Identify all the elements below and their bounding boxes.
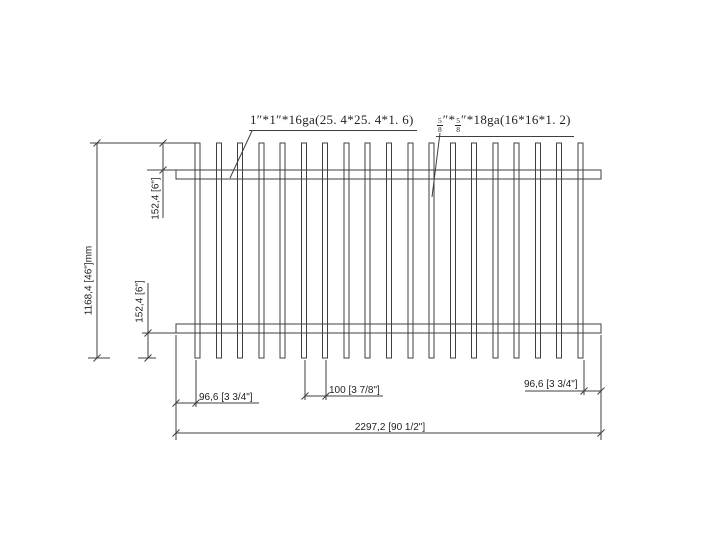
- dim-overall-height: 1168,4 [46"]mm: [83, 231, 96, 331]
- picket: [450, 143, 455, 358]
- picket: [344, 143, 349, 358]
- fence-drawing: [0, 0, 720, 541]
- picket: [557, 143, 562, 358]
- dim-overall-width: 2297,2 [90 1/2"]: [330, 421, 450, 434]
- callout-picket-spec: 58″*58″*18ga(16*16*1. 2): [436, 112, 574, 137]
- picket: [493, 143, 498, 358]
- picket: [514, 143, 519, 358]
- callout-rail-spec-text: 1″*1″*16ga(25. 4*25. 4*1. 6): [250, 112, 414, 127]
- picket: [216, 143, 221, 358]
- rail-bottom: [176, 324, 601, 333]
- dim-left-end-spacing: 96,6 [3 3/4"]: [199, 391, 253, 404]
- rail-top: [176, 170, 601, 179]
- dim-right-end-spacing: 96,6 [3 3/4"]: [524, 378, 578, 391]
- picket: [365, 143, 370, 358]
- picket: [301, 143, 306, 358]
- picket: [195, 143, 200, 358]
- dim-top-rail-offset: 152,4 [6"]: [150, 171, 163, 227]
- picket: [408, 143, 413, 358]
- picket: [535, 143, 540, 358]
- picket: [323, 143, 328, 358]
- picket: [387, 143, 392, 358]
- picket: [578, 143, 583, 358]
- picket: [280, 143, 285, 358]
- picket: [472, 143, 477, 358]
- picket: [238, 143, 243, 358]
- callout-rail-spec: 1″*1″*16ga(25. 4*25. 4*1. 6): [249, 112, 417, 131]
- picket: [259, 143, 264, 358]
- dim-bottom-rail-offset: 152,4 [6"]: [134, 274, 147, 330]
- callout-picket-mid: ″*: [443, 112, 456, 127]
- dim-picket-spacing: 100 [3 7/8"]: [329, 384, 380, 397]
- leader-line-rail-spec: [230, 131, 252, 178]
- callout-picket-tail: ″*18ga(16*16*1. 2): [461, 112, 571, 127]
- picket: [429, 143, 434, 358]
- drawing-canvas: 1″*1″*16ga(25. 4*25. 4*1. 6) 58″*58″*18g…: [0, 0, 720, 541]
